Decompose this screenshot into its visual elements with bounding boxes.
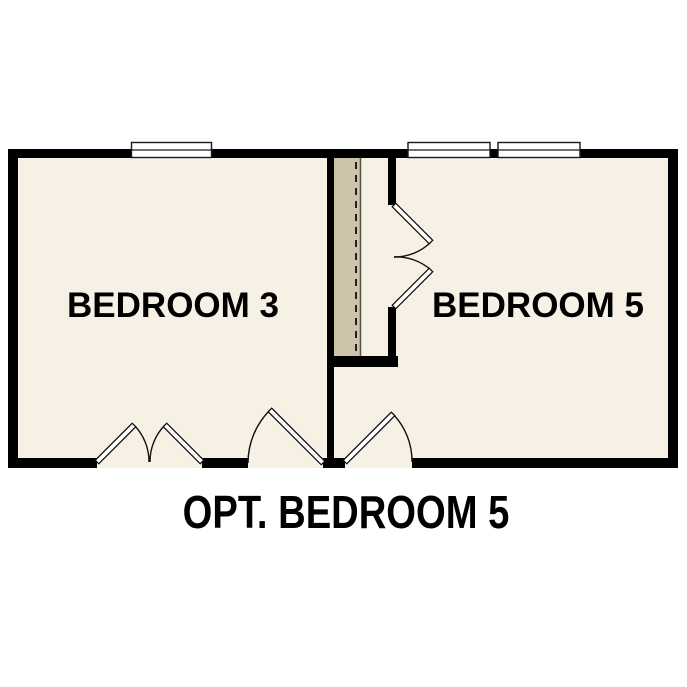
floor-plan	[0, 0, 687, 687]
page: BEDROOM 3 BEDROOM 5 OPT. BEDROOM 5	[0, 0, 687, 687]
bottom-wall-segment-2	[202, 458, 248, 468]
closet-floor	[334, 158, 361, 356]
window-bedroom5-right	[498, 143, 580, 158]
closet-bottom-wall	[327, 356, 398, 367]
bedroom3-label: BEDROOM 3	[67, 288, 279, 323]
door-threshold-bedroom5	[345, 458, 412, 468]
plan-caption: OPT. BEDROOM 5	[183, 489, 510, 535]
bottom-wall-segment-1	[8, 458, 97, 468]
outer-wall-right	[668, 149, 678, 468]
bedroom5-label: BEDROOM 5	[432, 288, 644, 323]
window-bedroom5-left	[408, 143, 490, 158]
window-bedroom3	[132, 143, 212, 158]
door-threshold-bedroom3	[248, 458, 323, 468]
outer-wall-left	[8, 149, 18, 468]
closet-wall-upper-jamb	[388, 158, 396, 205]
center-dividing-wall	[327, 149, 334, 468]
closet-wall-lower-jamb	[388, 307, 396, 356]
bottom-wall-segment-4	[412, 458, 678, 468]
